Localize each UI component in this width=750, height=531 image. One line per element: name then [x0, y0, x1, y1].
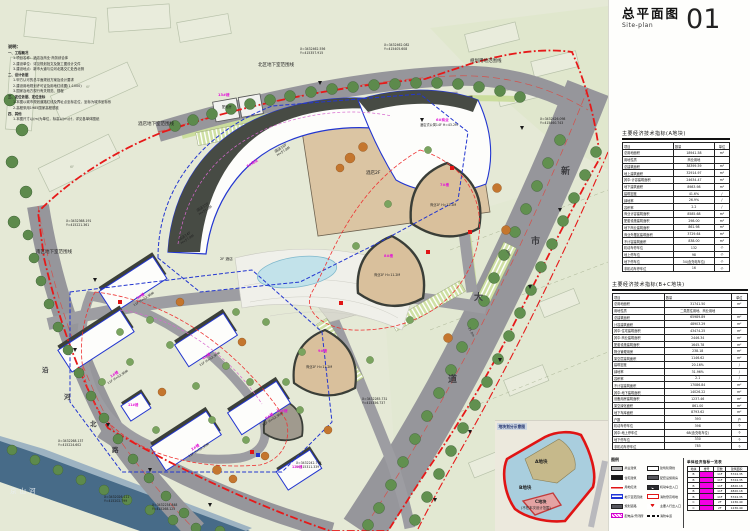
- road-west-char-4: 路: [112, 445, 119, 454]
- legend-label: 配电房/开闭所: [625, 514, 644, 518]
- svg-text:Y=415405.608: Y=415405.608: [384, 47, 407, 51]
- table-row: 架空绿化面积861.00m²: [613, 402, 748, 409]
- legend-label: 配套设施用房: [660, 476, 678, 480]
- table-row: 总建筑面积38399.59m²: [623, 163, 730, 170]
- road-west-char-1: 沿: [42, 365, 49, 374]
- table-row: 架空层建筑面积1146.62m²: [613, 355, 748, 362]
- redmark-swatch-icon: ♥: [647, 504, 659, 509]
- column-header: 单位: [714, 143, 729, 150]
- title-block: 总平面图 Site-plan 01: [622, 8, 746, 32]
- table-row: 地下商业建筑面积861.98m²: [623, 224, 730, 231]
- keymap-label-c-note: (不在本次设计范围): [521, 505, 551, 510]
- table-row: 容积率2.1/: [613, 375, 748, 382]
- column-header: 项目: [613, 294, 665, 301]
- table-row: 户数393户: [613, 416, 748, 423]
- table-row: 建筑密度20.16%/: [613, 362, 748, 369]
- svg-text:Y=415460.743: Y=415460.743: [540, 121, 563, 125]
- road-east-char-3: 大: [474, 291, 483, 303]
- table-row: 设备用房建筑面积1237.46m²: [613, 395, 748, 402]
- table-row: 地下停车位34(含充电车位)个: [623, 258, 730, 265]
- divider: [683, 458, 684, 528]
- heading-rule: [622, 138, 730, 140]
- legend-item: 住宅建筑: [611, 474, 644, 483]
- column-header: 项目: [623, 143, 674, 150]
- table-row: 商业外摆区建筑面积3729.64m²: [623, 231, 730, 238]
- road-west-char-2: 河: [64, 392, 71, 401]
- sheet-title-cn: 总平面图: [622, 8, 680, 21]
- legend-item: ➤机动车出入口: [647, 483, 682, 492]
- svg-text:商业2F H=11.2M: 商业2F H=11.2M: [430, 202, 456, 207]
- keymap-label-b: B地块: [519, 484, 532, 491]
- econ-table-bc-rows: 总用地面积31741.50m²用地性质二类居住用地、商业用地总建筑面积65989…: [613, 300, 748, 449]
- note-line: 3.建设地点：新市大道与沿河北路交汇处西北侧: [8, 67, 138, 72]
- econ-table-bc: 主要经济技术指标(B+C地块) 项目数量单位 总用地面积31741.50m²用地…: [612, 281, 748, 450]
- econ-table-a: 主要经济技术指标(A地块) 项目数量单位 总用地面积18941.58m²用地性质…: [622, 130, 730, 272]
- legend-label: 地下室范围线: [625, 495, 643, 499]
- svg-text:商业2F H=11.2M: 商业2F H=11.2M: [306, 364, 332, 369]
- legend-label: 商业建筑: [625, 466, 637, 470]
- unit-table-block: 单体经济指标一览表 地块楼号层数建筑面积 B1#楼11F5724.35B2#楼1…: [687, 460, 748, 511]
- legend-label: 消防车道: [660, 514, 672, 518]
- arrow-swatch-icon: ➤: [647, 485, 659, 490]
- svg-text:8#楼: 8#楼: [384, 253, 394, 258]
- econ-table-bc-heading: 主要经济技术指标(B+C地块): [612, 281, 748, 288]
- sheet-number: 01: [686, 8, 720, 32]
- note-line: 1.本图尺寸以(m)为单位，标高以(m)计，详见各单体图纸: [8, 117, 138, 122]
- table-row: 机动车停车位132个: [623, 244, 730, 251]
- table-row: 非机动车停车位16个: [623, 265, 730, 272]
- note-line: 2.高程采用1985国家高程基准: [8, 106, 138, 111]
- svg-text:2F 酒店: 2F 酒店: [220, 256, 233, 261]
- table-row: 绿地率26.9%/: [623, 197, 730, 204]
- table-row: 总用地面积31741.50m²: [613, 300, 748, 307]
- table-row: 物业管理用房238.18m²: [613, 348, 748, 355]
- svg-text:13#楼: 13#楼: [218, 92, 230, 97]
- legend-item: 用地红线: [611, 483, 644, 492]
- legend-item: ♥主要人行出入口: [647, 502, 682, 511]
- svg-text:配电房: 配电房: [222, 104, 232, 109]
- keymap-label-a: A地块: [535, 458, 548, 465]
- column-header: 单位: [731, 294, 747, 301]
- legend-item: 配套设施用房: [647, 474, 682, 483]
- context-label-2: 6F: [70, 165, 74, 169]
- legend: 图例 商业建筑建筑轮廓线住宅建筑配套设施用房用地红线➤机动车出入口地下室范围线消…: [611, 457, 681, 529]
- svg-text:Y=415356.737: Y=415356.737: [362, 401, 385, 405]
- table-row: 地下建筑面积8983.98m²: [623, 183, 730, 190]
- legend-item: 规划道路: [611, 502, 644, 511]
- svg-text:酒店2F: 酒店2F: [366, 169, 381, 176]
- column-header: 数量: [664, 294, 731, 301]
- road-east-char-4: 道: [448, 373, 457, 385]
- label-hotel-basement: 酒店地下室范围线: [138, 120, 174, 127]
- unit-table-rows: B1#楼11F5724.35B2#楼11F5724.35B3#楼11F4820.…: [688, 472, 748, 511]
- road-east-char-1: 新: [561, 165, 570, 177]
- blueline-swatch-icon: [611, 494, 623, 499]
- legend-label: 规划道路: [625, 504, 637, 508]
- legend-item: 消防车道: [647, 512, 682, 521]
- table-row: 其中:计容建筑面积24634.47m²: [623, 177, 730, 184]
- dash-swatch-icon: [647, 515, 659, 517]
- svg-text:7#楼: 7#楼: [440, 182, 450, 187]
- legend-label: 用地红线: [625, 485, 637, 489]
- legend-label: 消防登高场地: [660, 495, 678, 499]
- legend-label: 建筑轮廓线: [660, 466, 675, 470]
- notes-block: 说明： 一、工程概况1.项目名称：酒店及商业·商务综合体2.建设单位：详见规划批…: [8, 44, 138, 122]
- black-swatch-icon: [611, 475, 623, 480]
- table-row: 其中:商业建筑面积2446.34m²: [613, 334, 748, 341]
- notes-lines: 一、工程概况1.项目名称：酒店及商业·商务综合体2.建设单位：详见规划批文及施工…: [8, 51, 138, 122]
- table-row: 用地性质二类居住用地、商业用地: [613, 307, 748, 314]
- notes-heading: 说明：: [8, 44, 138, 50]
- keymap-heading: 地块划分示意图: [497, 423, 527, 430]
- label-south-basement: 南区地下室范围线: [36, 248, 72, 255]
- svg-text:商业2F H=11.2M: 商业2F H=11.2M: [374, 272, 400, 277]
- svg-text:酒店式公寓14F H=43.2M: 酒店式公寓14F H=43.2M: [420, 122, 458, 127]
- econ-table-a-heading: 主要经济技术指标(A地块): [622, 130, 730, 137]
- legend-item: 配电房/开闭所: [611, 512, 644, 521]
- ramp-marker: [256, 453, 260, 457]
- legend-item: 地下室范围线: [611, 493, 644, 502]
- keymap-label-c: C地块: [535, 498, 547, 505]
- svg-text:12#楼: 12#楼: [292, 464, 303, 469]
- legend-label: 主要人行出入口: [660, 504, 681, 508]
- sheet-title-en: Site-plan: [622, 22, 680, 29]
- table-row: 地上停车位98个: [623, 251, 730, 258]
- white-swatch-icon: [647, 466, 659, 471]
- svg-text:9#楼: 9#楼: [318, 348, 328, 353]
- table-row: 其中:住宅建筑面积43474.25m²: [613, 328, 748, 335]
- svg-text:Y=415357.915: Y=415357.915: [300, 51, 323, 55]
- keymap-drawing: A地块 B地块 C地块 (不在本次设计范围): [495, 421, 608, 531]
- econ-table-a-rows: 总用地面积18941.58m²用地性质商业用地总建筑面积38399.59m²地上…: [623, 149, 730, 271]
- table-row: 总用地面积18941.58m²: [623, 149, 730, 156]
- table-row: 配套设施建筑面积1645.78m²: [613, 341, 748, 348]
- keymap-panel: 地块划分示意图 A地块 B地块 C地块 (不在本次设计范围): [495, 420, 608, 531]
- note-line: 3.国家及地方现行有关规范、规程: [8, 89, 138, 94]
- econ-table-a-header: 项目数量单位: [623, 143, 730, 150]
- road-east-char-2: 市: [531, 235, 540, 247]
- table-row: 地下车库面积8793.62m²: [613, 409, 748, 416]
- table-row: 不计容建筑面积17086.84m²: [613, 382, 748, 389]
- table-row: 地上建筑面积32914.97m²: [623, 170, 730, 177]
- table-row: 用地性质商业用地: [623, 156, 730, 163]
- svg-text:Y=415268.125: Y=415268.125: [152, 507, 175, 511]
- table-row: 总建筑面积65989.89m²: [613, 314, 748, 321]
- site-plan-sheet: 6F 6F 京山河: [0, 0, 750, 531]
- dark-swatch-icon: [647, 475, 659, 480]
- legend-heading: 图例: [611, 457, 681, 463]
- table-row: 非机动车停车位785个: [613, 443, 748, 450]
- svg-text:Y=415224.602: Y=415224.602: [58, 443, 81, 447]
- road-west-char-3: 北: [90, 419, 97, 428]
- redbox-swatch-icon: [647, 494, 659, 499]
- legend-item: 消防登高场地: [647, 493, 682, 502]
- legend-items: 商业建筑建筑轮廓线住宅建筑配套设施用房用地红线➤机动车出入口地下室范围线消防登高…: [611, 464, 681, 520]
- table-row: 其中:地下建筑面积14026.22m²: [613, 389, 748, 396]
- dark-swatch-icon: [611, 504, 623, 509]
- gray-swatch-icon: [611, 466, 623, 471]
- econ-table-bc-header: 项目数量单位: [613, 294, 748, 301]
- magenta-swatch-icon: [611, 513, 623, 518]
- column-header: 数量: [673, 143, 714, 150]
- label-north-basement: 北区地下室范围线: [258, 61, 294, 68]
- svg-text:6#商业: 6#商业: [436, 117, 449, 122]
- table-row: 其中:地上停车位68(含充电车位)个: [613, 429, 748, 436]
- table-row: 容积率2.2/: [623, 204, 730, 211]
- table-row: 商业计容建筑面积8585.68m²: [623, 211, 730, 218]
- table-row: C8#楼2F1236.40: [688, 505, 748, 511]
- legend-label: 机动车出入口: [660, 485, 678, 489]
- table-row: 机动车停车位398个: [613, 423, 748, 430]
- unit-table-heading: 单体经济指标一览表: [687, 460, 748, 465]
- redline-swatch-icon: [611, 485, 623, 490]
- svg-text:Y=415202.799: Y=415202.799: [104, 499, 127, 503]
- svg-text:Y=415221.361: Y=415221.361: [66, 223, 89, 227]
- table-row: 绿地率31.96%/: [613, 368, 748, 375]
- river-name: 京山河: [10, 486, 39, 495]
- table-row: 建筑密度41.6%/: [623, 190, 730, 197]
- label-planning-boundary: 规划用地范围线: [470, 57, 502, 64]
- legend-item: 商业建筑: [611, 464, 644, 473]
- heading-rule: [612, 289, 748, 291]
- table-row: 不计容建筑面积838.00m²: [623, 238, 730, 245]
- svg-text:11#楼: 11#楼: [128, 402, 139, 407]
- table-row: 配套设施建筑面积298.00m²: [623, 217, 730, 224]
- legend-item: 建筑轮廓线: [647, 464, 682, 473]
- legend-label: 住宅建筑: [625, 476, 637, 480]
- table-row: 计容建筑面积48903.29m²: [613, 321, 748, 328]
- table-row: 地下停车位330个: [613, 436, 748, 443]
